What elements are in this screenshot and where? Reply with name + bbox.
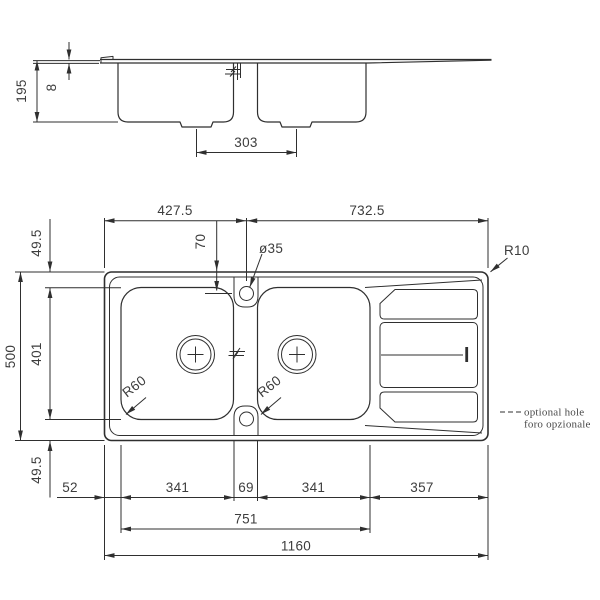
dim-label-341-left: 341 (166, 480, 189, 495)
dim-top-spans: 427.5 732.5 (105, 203, 489, 281)
bowl-right (258, 288, 371, 420)
sink-technical-drawing: 195 8 303 (0, 0, 600, 600)
bowl-left (121, 288, 234, 420)
dim-label-49-5-bottom: 49.5 (29, 456, 44, 483)
dim-label-49-5-top: 49.5 (29, 229, 44, 256)
dim-label-195: 195 (14, 79, 29, 102)
plan-break-mark (229, 348, 246, 359)
dim-label-500: 500 (3, 345, 18, 368)
dim-label-401: 401 (29, 342, 44, 365)
drawing-svg: 195 8 303 (0, 0, 600, 600)
dim-label-r60-left: R60 (119, 373, 148, 401)
drainboard-groove-end-tick (465, 347, 468, 362)
drainboard-rib-1 (380, 290, 478, 320)
dim-label-357: 357 (410, 480, 433, 495)
sink-inner-rim (110, 277, 484, 436)
dim-depth-195: 195 (14, 61, 39, 123)
dim-label-8: 8 (44, 84, 59, 92)
dim-label-732-5: 732.5 (349, 203, 384, 218)
dim-label-d35: ø35 (259, 241, 283, 256)
optional-hole-note-en: optional hole (524, 407, 584, 419)
leader-hole-diameter: ø35 (248, 241, 284, 288)
dim-label-r10: R10 (504, 243, 530, 258)
dim-hole-offset-70: 70 (193, 221, 232, 294)
drainboard (365, 280, 482, 433)
dim-drains-303: 303 (197, 129, 297, 157)
dim-label-341-right: 341 (302, 480, 325, 495)
plan-view (105, 272, 489, 441)
dim-label-1160: 1160 (281, 539, 311, 554)
side-bowl-left (118, 63, 234, 127)
drain-left (177, 336, 215, 374)
tap-hole (240, 287, 254, 301)
sink-outer-edge (105, 272, 489, 441)
dim-label-427-5: 427.5 (157, 203, 192, 218)
leader-bowl-radius-right: R60 (254, 373, 283, 416)
dim-label-69: 69 (238, 480, 254, 495)
dim-label-52: 52 (62, 480, 78, 495)
dim-label-303: 303 (234, 135, 257, 150)
optional-hole-note-it: foro opzionale (524, 419, 591, 431)
side-rim-bottom-line (100, 60, 492, 63)
dim-bottom-rows: 52 341 69 341 357 751 1160 (57, 441, 488, 560)
tap-hole-tab (234, 278, 258, 308)
drainboard-rib-3 (380, 392, 478, 422)
drain-right (278, 336, 316, 374)
dim-rim-8: 8 (44, 42, 71, 91)
dim-label-r60-right: R60 (254, 373, 283, 401)
annotation-optional-hole: optional hole foro opzionale (500, 407, 591, 431)
side-view: 195 8 303 (14, 42, 492, 157)
dim-label-70: 70 (193, 234, 208, 250)
leader-corner-radius: R10 (489, 243, 530, 274)
optional-hole (240, 412, 254, 426)
dim-left-column: 49.5 500 401 49.5 (3, 219, 121, 498)
dim-label-751: 751 (234, 512, 257, 527)
side-divider-lines (238, 63, 241, 80)
side-bowl-right (258, 63, 367, 127)
optional-hole-tab (234, 406, 258, 436)
dim-lines (57, 498, 488, 556)
